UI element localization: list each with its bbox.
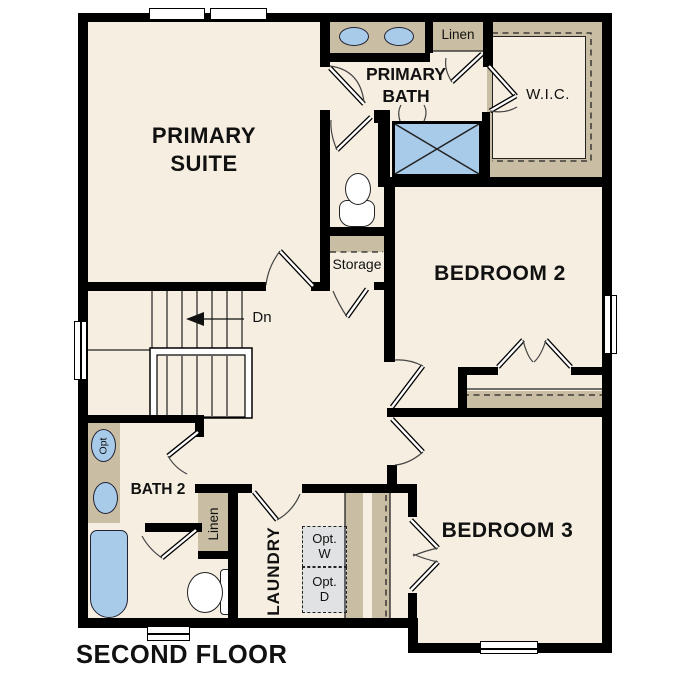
page-title: SECOND FLOOR — [76, 640, 376, 672]
door-primary-suite — [266, 251, 313, 286]
room-label-bedroom2: BEDROOM 2 — [414, 261, 586, 287]
shower-glass-x — [395, 105, 479, 174]
window — [149, 8, 205, 20]
room-label-linen-upper: Linen — [433, 27, 483, 44]
door-wic — [489, 66, 517, 112]
stair-rail-inner — [157, 355, 245, 417]
window — [210, 8, 267, 20]
room-label-bath2: BATH 2 — [117, 480, 199, 499]
stairs-down-arrow — [186, 312, 244, 326]
door-storage — [333, 289, 367, 317]
window — [604, 295, 617, 354]
window-mullion — [148, 633, 189, 635]
stairs — [88, 291, 252, 418]
window-mullion — [481, 648, 537, 650]
door-bedroom2 — [392, 360, 423, 407]
floor-plan: Opt. W Opt. D Opt — [0, 0, 687, 687]
room-label-wic: W.I.C. — [516, 86, 580, 105]
door-toilet-room — [331, 117, 371, 150]
door-tub-room — [142, 530, 196, 558]
room-label-laundry: LAUNDRY — [263, 516, 281, 626]
room-label-bedroom3: BEDROOM 3 — [420, 518, 595, 544]
window — [480, 641, 538, 654]
closet-doors-bedroom2 — [498, 340, 571, 367]
door-bedroom3 — [392, 419, 423, 465]
plan-linework — [0, 0, 687, 687]
window — [147, 626, 190, 641]
door-bath2 — [168, 432, 198, 474]
room-label-linen-lower: Linen — [206, 494, 220, 554]
stairs-down-label: Dn — [246, 309, 278, 328]
window — [74, 321, 87, 380]
window-mullion — [80, 322, 82, 379]
room-label-storage: Storage — [327, 256, 387, 274]
room-label-primary-bath: PRIMARY BATH — [350, 64, 462, 108]
room-label-primary-suite: PRIMARY SUITE — [134, 122, 274, 177]
window-mullion — [610, 296, 612, 353]
